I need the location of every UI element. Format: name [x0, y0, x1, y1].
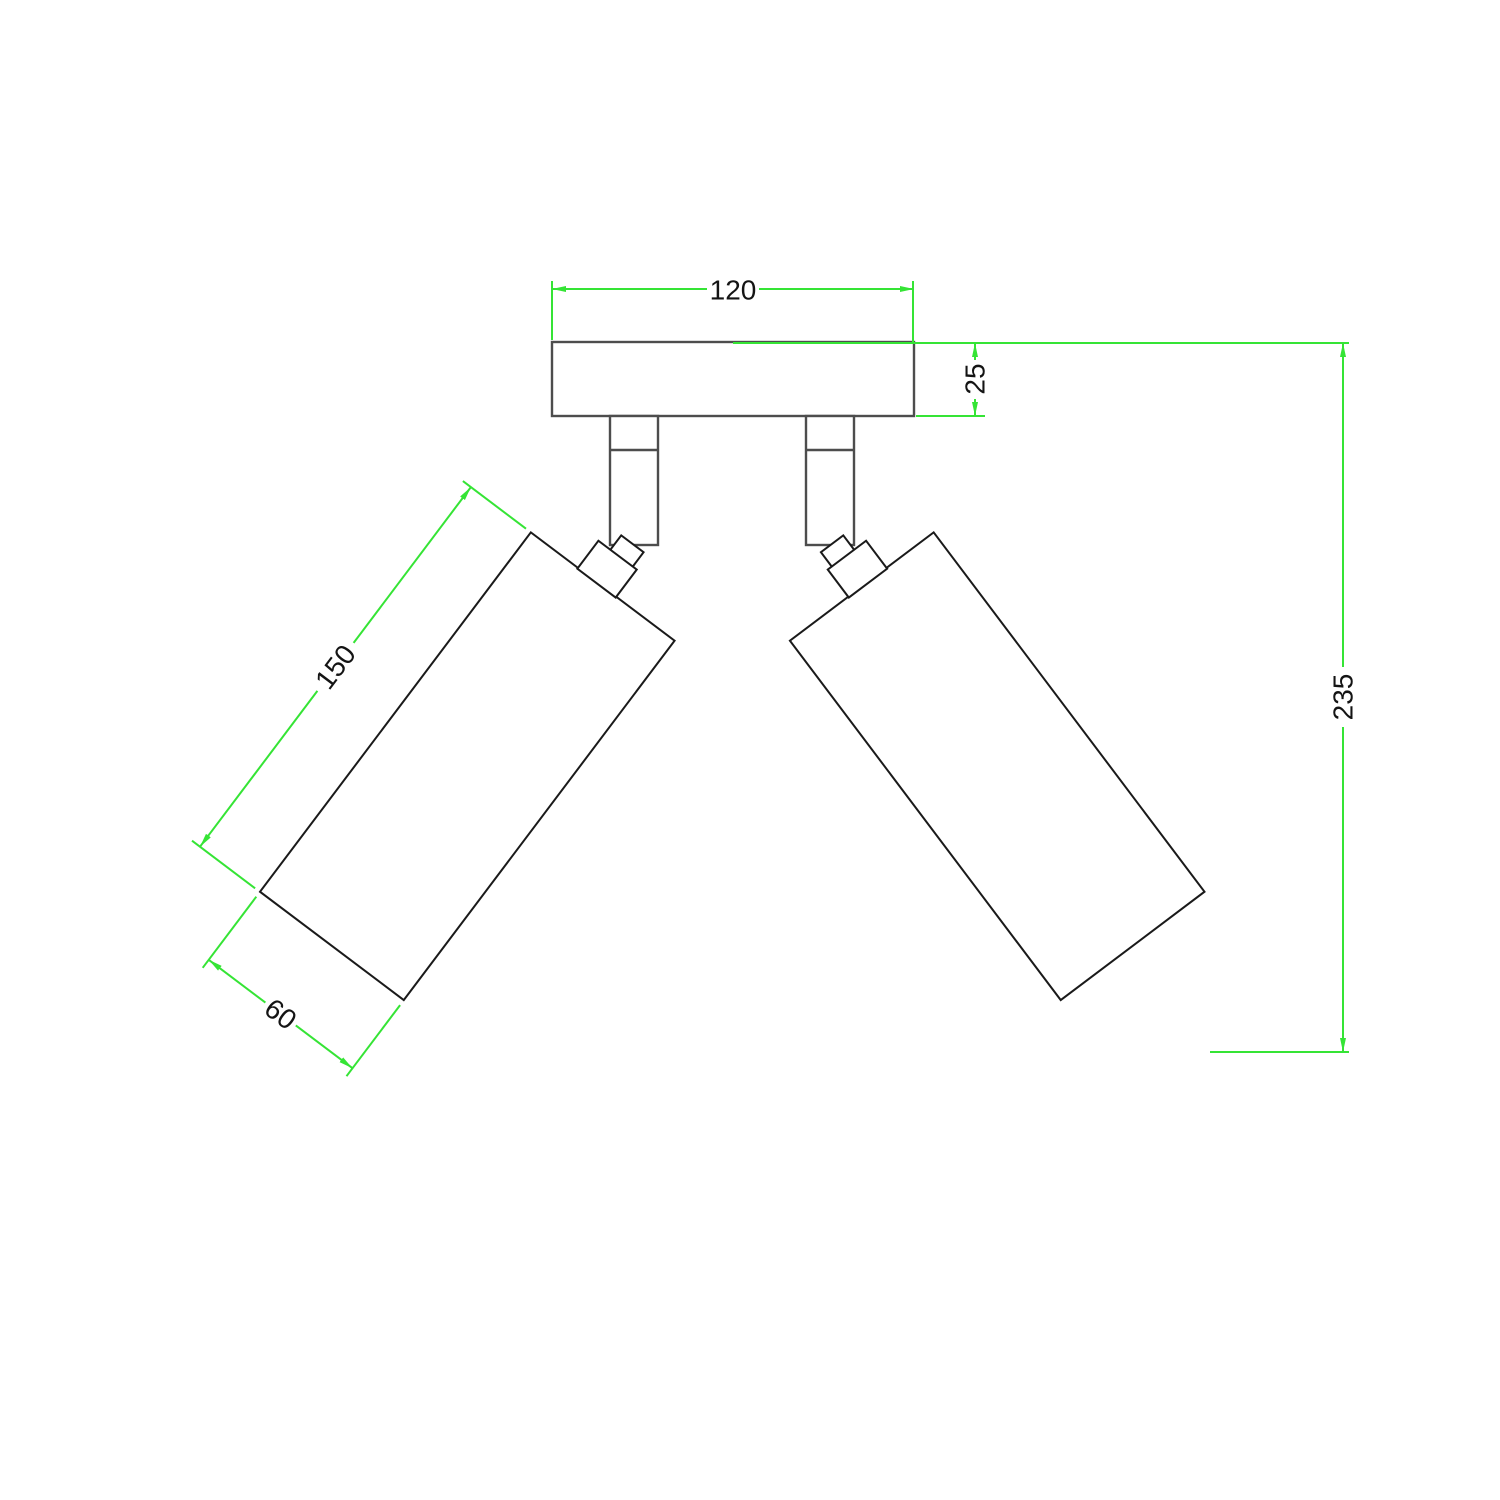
- left-lamp-body: [260, 532, 675, 1000]
- right-lamp-assembly: [759, 491, 1205, 1000]
- dim-label-plate-width: 120: [710, 275, 757, 306]
- extension-line: [463, 481, 526, 529]
- left-lamp-assembly: [260, 491, 706, 1000]
- dimension-line: [296, 1025, 353, 1068]
- dimension-line: [200, 691, 317, 847]
- right-lamp-body: [790, 532, 1205, 1000]
- dim-label-lamp-length: 150: [309, 639, 362, 695]
- extension-line: [203, 897, 257, 968]
- dimension-line: [209, 960, 266, 1003]
- dim-plate-thickness: 25: [916, 343, 991, 416]
- dim-label-overall-height: 235: [1328, 674, 1359, 721]
- technical-drawing-canvas: 120 25 235: [0, 0, 1500, 1500]
- fixture-outline: [260, 342, 1204, 1000]
- left-stem-body: [610, 416, 658, 545]
- extension-line: [192, 841, 255, 889]
- right-stem-body: [806, 416, 854, 545]
- ceiling-plate: [552, 342, 914, 416]
- dim-label-lamp-diameter: 60: [259, 992, 303, 1036]
- drawing-page: 120 25 235: [0, 0, 1500, 1500]
- dimension-line: [354, 487, 471, 643]
- dim-plate-width: 120: [552, 275, 914, 344]
- left-stem: [610, 416, 658, 545]
- dim-label-plate-thickness: 25: [960, 363, 991, 394]
- extension-line: [347, 1005, 401, 1076]
- right-stem: [806, 416, 854, 545]
